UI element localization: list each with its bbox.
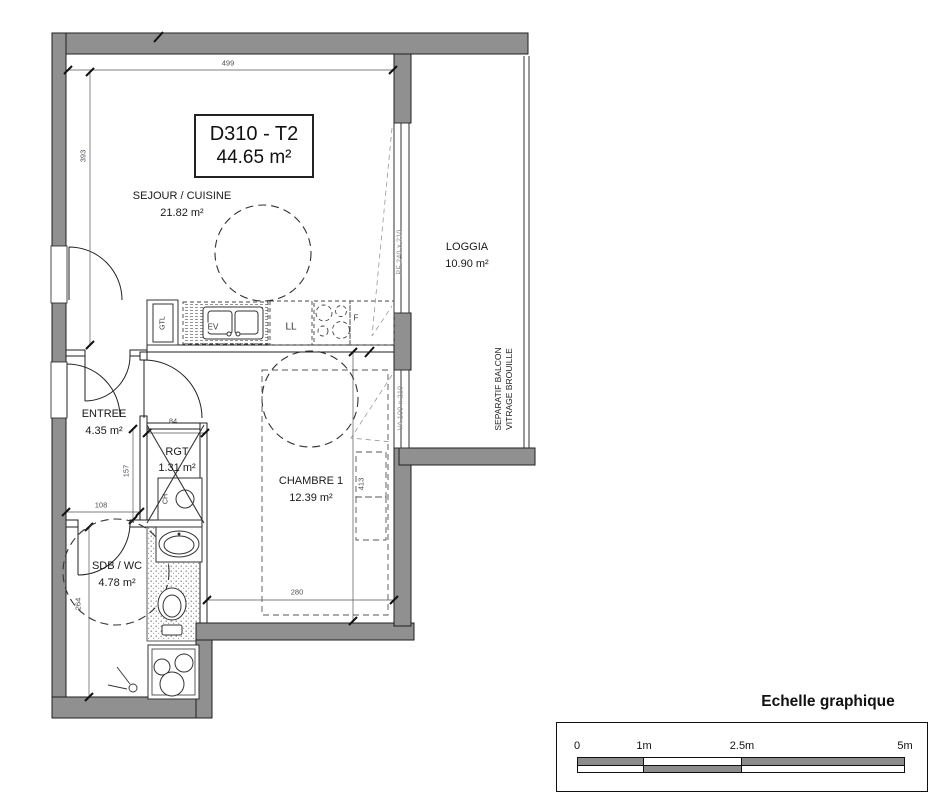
door-gap-sejour — [51, 246, 67, 303]
wall-loggia-bottom — [399, 448, 535, 465]
scale-bar — [577, 757, 905, 773]
dim-sejour-height: 393 — [79, 150, 88, 163]
room-area-entree: 4.35 m² — [85, 425, 122, 437]
kitchen-counter — [147, 300, 394, 345]
cooktop-burner-icon — [318, 326, 328, 336]
dim-chambre-width: 280 — [291, 588, 304, 597]
dim-rgt-width: 84 — [169, 417, 177, 426]
scale-seg — [643, 765, 741, 772]
floor-plan-page: D310 - T2 44.65 m² SEJOUR / CUISINE 21.8… — [0, 0, 937, 800]
floor-drain-icon — [129, 684, 137, 692]
fridge-label: F — [354, 314, 359, 323]
room-area-rgt: 1.31 m² — [158, 462, 195, 474]
turning-circle-chambre — [262, 351, 358, 447]
door-arc-entree-sejour — [85, 356, 130, 401]
loggia-railing — [524, 56, 529, 448]
scale-seg — [578, 758, 643, 765]
turning-circle-sejour — [215, 205, 311, 301]
room-label-sejour: SEJOUR / CUISINE — [133, 190, 231, 202]
floor-plan-drawing — [0, 0, 937, 800]
separator-line2: VITRAGE BROUILLE — [504, 347, 515, 430]
water-heater-icon — [176, 490, 194, 508]
dim-sdb-height: 264 — [74, 598, 83, 611]
scale-seg — [578, 765, 643, 772]
scale-title: Echelle graphique — [761, 693, 895, 711]
scale-tick-2-5m: 2.5m — [730, 740, 754, 752]
wall-top — [55, 33, 528, 54]
sink-label: EV — [207, 323, 220, 332]
dim-sejour-width: 499 — [222, 59, 235, 68]
wall-chambre-bottom — [196, 623, 414, 640]
scale-seg — [741, 765, 904, 772]
room-label-entree: ENTREE — [82, 408, 127, 420]
window-swings — [351, 128, 392, 442]
partition-sdb-a — [66, 520, 78, 527]
partition-sdb-b — [130, 520, 202, 527]
room-area-sejour: 21.82 m² — [160, 207, 203, 219]
washing-machine-label: LL — [285, 322, 296, 333]
door-arc-sejour — [69, 247, 122, 300]
door-gap-entree — [51, 362, 67, 418]
wall-bottom — [52, 697, 212, 718]
scale-tick-5m: 5m — [897, 740, 912, 752]
water-heater-label: CH — [163, 494, 170, 504]
wall-loggia-mid — [394, 313, 411, 370]
partition-entree-a — [66, 350, 85, 356]
dim-chambre-height: 413 — [357, 478, 366, 491]
toilet-icon — [158, 588, 186, 620]
bed-outline-2 — [356, 497, 386, 540]
title-block: D310 - T2 44.65 m² — [194, 114, 314, 178]
cooktop-zone — [314, 301, 350, 345]
wall-chambre-right — [394, 448, 411, 626]
window-pf-label: PF 240 x 210 — [397, 229, 404, 274]
room-area-chambre: 12.39 m² — [289, 492, 332, 504]
room-area-loggia: 10.90 m² — [445, 258, 488, 270]
separator-note: SEPARATIF BALCON VITRAGE BROUILLE — [493, 347, 515, 430]
gtl-label: GTL — [160, 316, 167, 330]
scale-seg — [741, 758, 904, 765]
door-arc-chambre — [144, 360, 202, 418]
fridge-zone — [350, 301, 394, 345]
unit-area: 44.65 m² — [217, 147, 292, 169]
partition-v1-a — [140, 352, 147, 360]
room-label-rgt: RGT — [165, 446, 188, 458]
cooktop-burner-icon — [333, 322, 350, 339]
scale-tick-0: 0 — [574, 740, 580, 752]
wall-loggia-top — [394, 54, 411, 123]
window-va-label: VA 100 x 210 — [398, 386, 405, 431]
scale-tick-1m: 1m — [636, 740, 651, 752]
separator-line1: SEPARATIF BALCON — [493, 347, 504, 430]
scale-divider — [578, 765, 904, 766]
cooktop-burner-icon — [336, 306, 347, 317]
room-area-sdb: 4.78 m² — [98, 577, 135, 589]
room-label-chambre: CHAMBRE 1 — [279, 475, 343, 487]
unit-code: D310 - T2 — [210, 123, 299, 146]
scale-seg — [643, 758, 741, 765]
storage — [147, 425, 204, 523]
dim-entree-width: 108 — [95, 501, 108, 510]
room-label-loggia: LOGGIA — [446, 241, 488, 253]
room-label-sdb: SDB / WC — [92, 560, 142, 572]
dim-rgt-height: 157 — [122, 465, 131, 478]
cooktop-burner-icon — [316, 305, 332, 321]
